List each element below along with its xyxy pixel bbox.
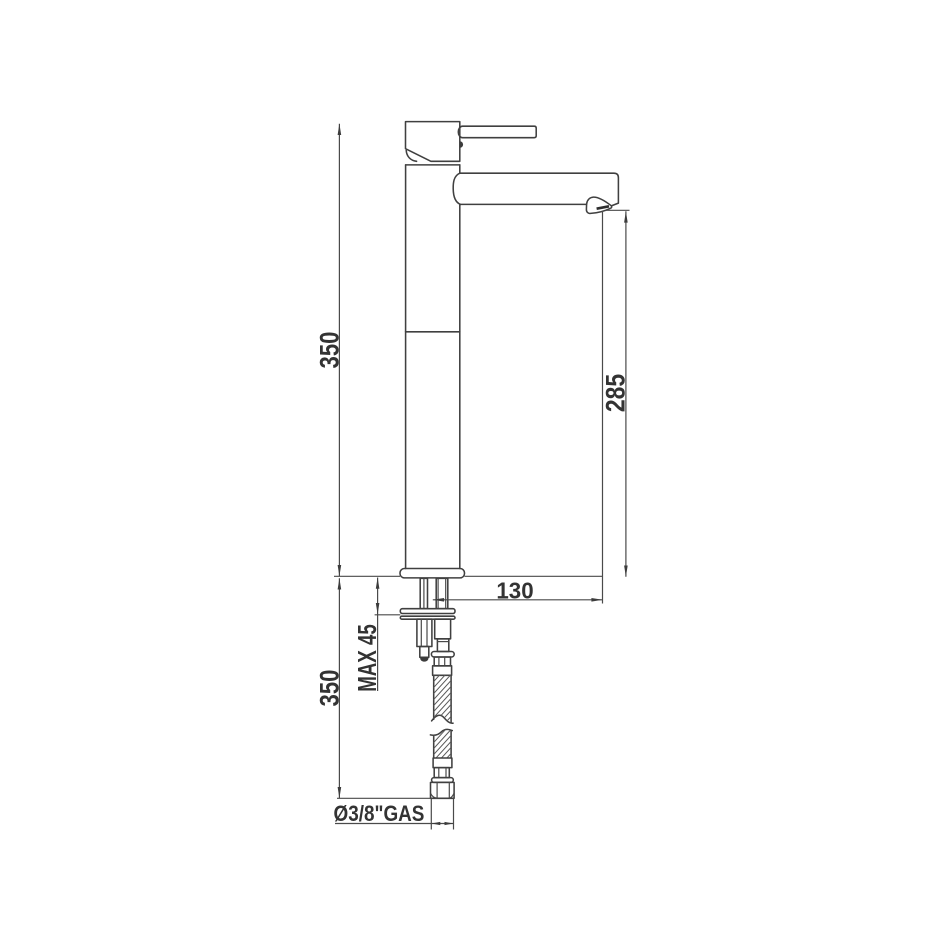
svg-text:350: 350 — [315, 670, 345, 707]
svg-text:MAX 45: MAX 45 — [352, 624, 382, 692]
svg-text:350: 350 — [315, 332, 345, 369]
svg-text:130: 130 — [496, 577, 533, 603]
svg-text:285: 285 — [601, 374, 631, 412]
svg-text:Ø3/8"GAS: Ø3/8"GAS — [334, 802, 425, 827]
